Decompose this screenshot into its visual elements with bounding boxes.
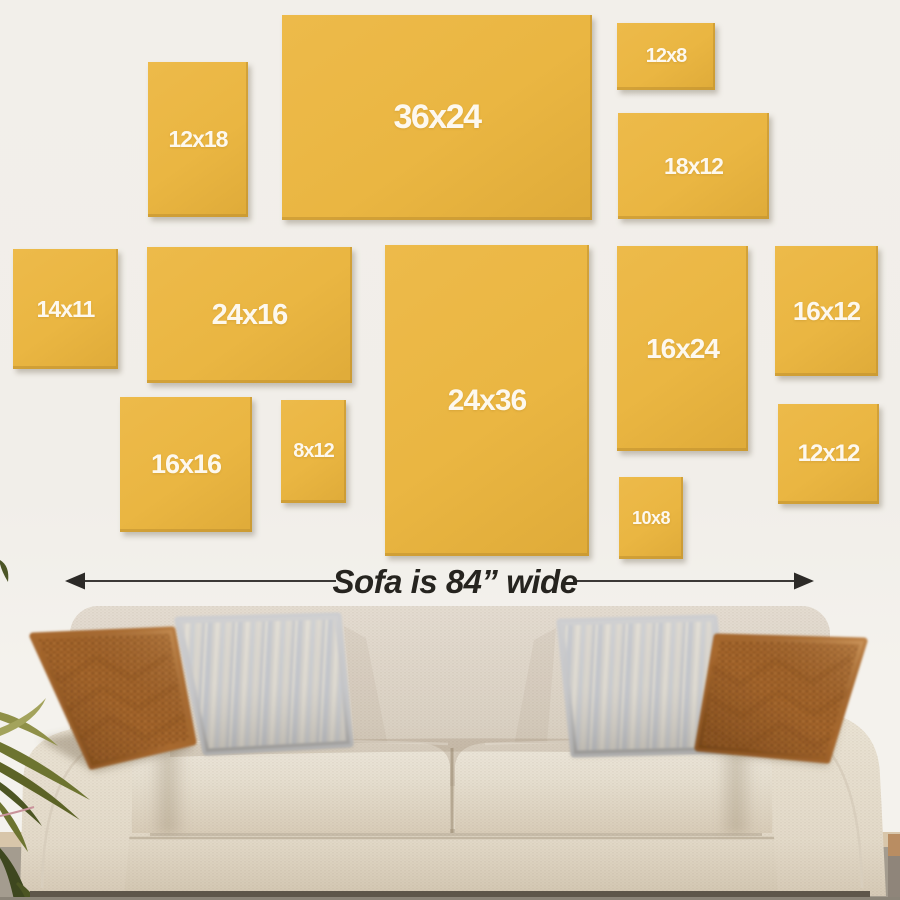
- svg-text:Sofa is 84” wide: Sofa is 84” wide: [332, 563, 577, 600]
